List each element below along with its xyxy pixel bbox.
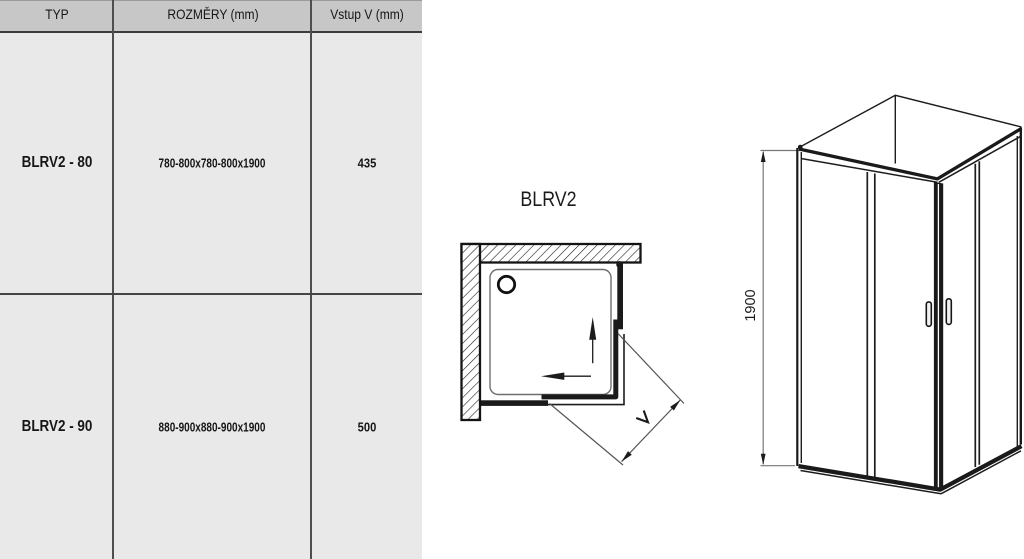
svg-text:1900: 1900 [743,289,759,321]
svg-text:BLRV2: BLRV2 [520,188,576,212]
